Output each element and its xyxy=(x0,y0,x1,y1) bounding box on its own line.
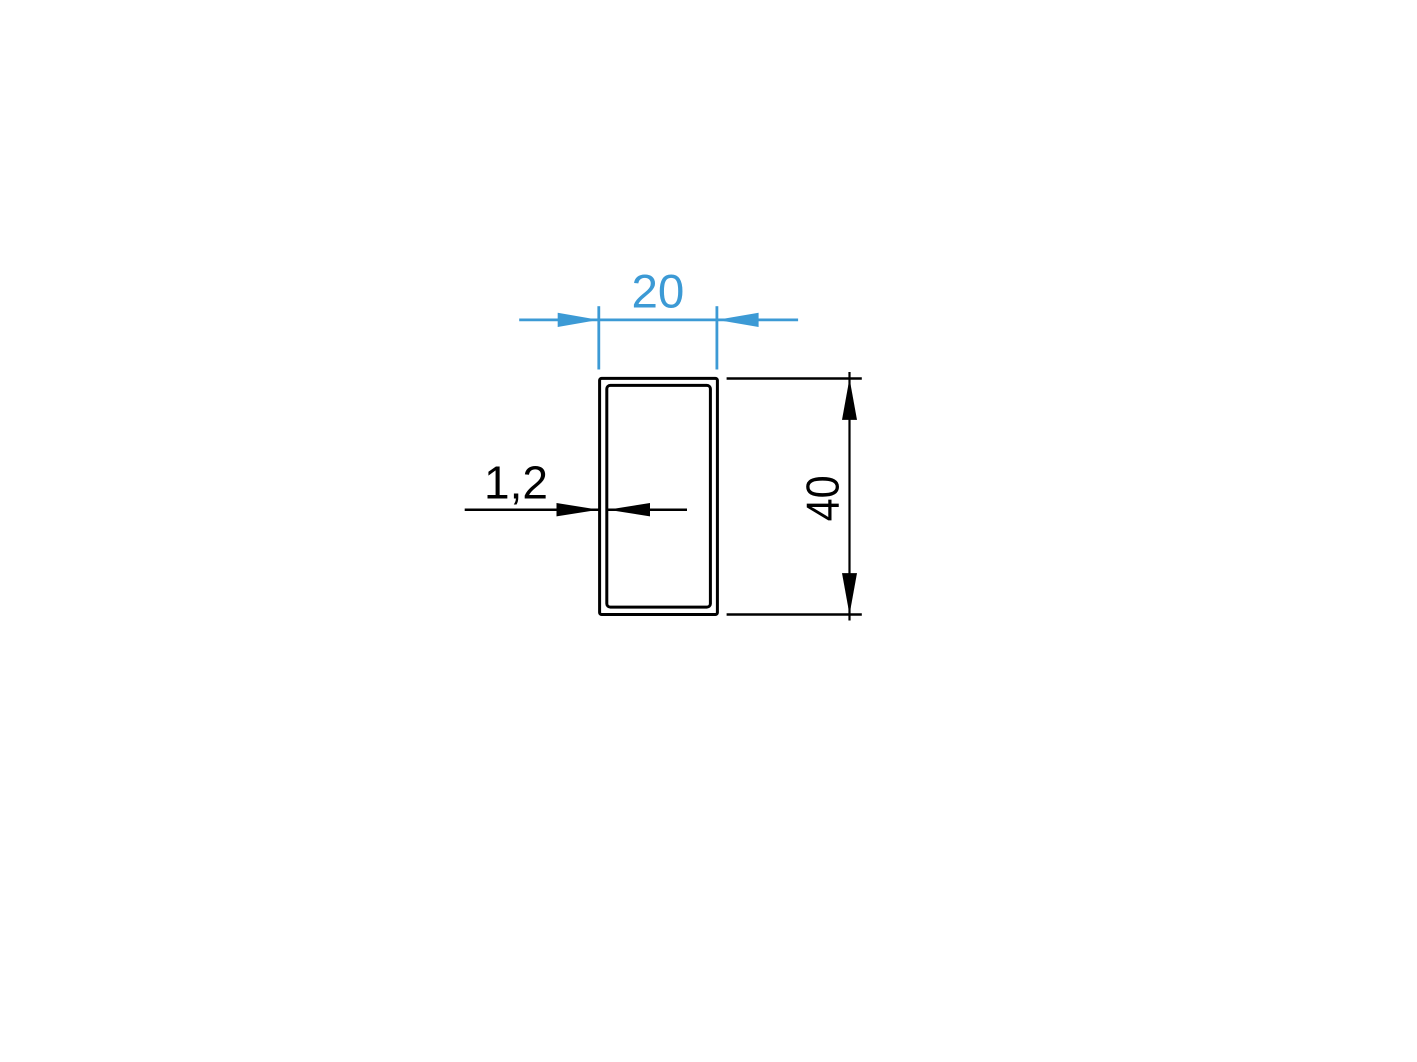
svg-text:1,2: 1,2 xyxy=(484,457,548,509)
svg-text:40: 40 xyxy=(797,475,849,521)
svg-text:20: 20 xyxy=(631,266,684,319)
